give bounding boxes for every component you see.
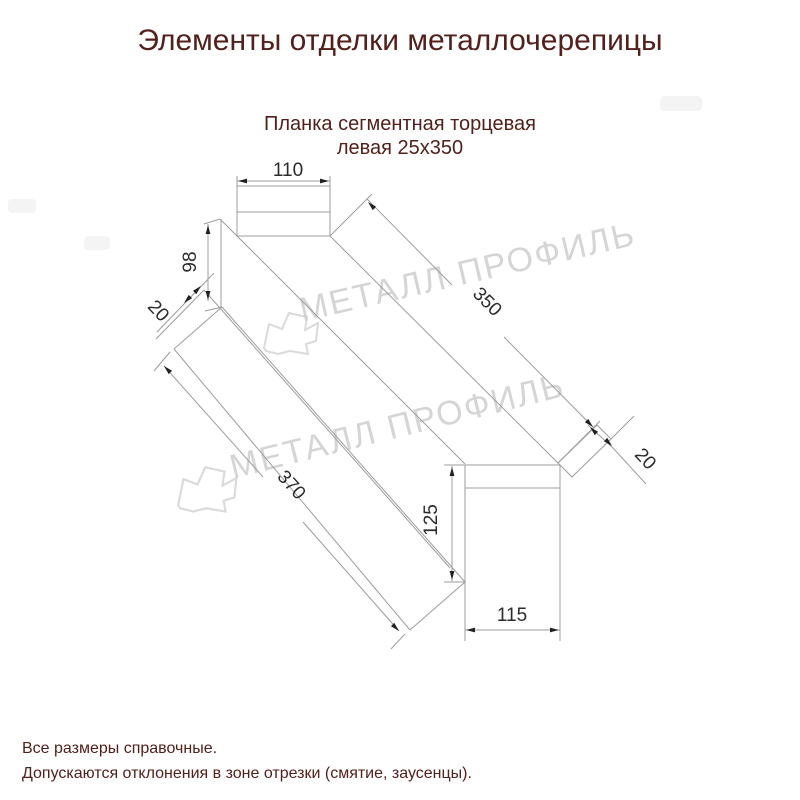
arrowhead: [164, 366, 172, 374]
watermark-text: МЕТАЛЛ ПРОФИЛЬ: [226, 366, 569, 486]
arrowhead: [184, 295, 192, 303]
technical-drawing: МЕТАЛЛ ПРОФИЛЬ МЕТАЛЛ ПРОФИЛЬ 110: [0, 0, 800, 800]
dim-20-right-label: 20: [630, 444, 660, 474]
dim-115-label: 115: [497, 605, 527, 626]
dim-98: 98: [180, 219, 222, 311]
watermark-fragment: [84, 236, 110, 250]
dim-125-label: 125: [421, 504, 442, 536]
dim-110-label: 110: [273, 160, 303, 181]
arrowhead: [238, 179, 247, 184]
arrowhead: [391, 623, 399, 631]
page-title: Элементы отделки металлочерепицы: [137, 24, 662, 57]
arrowhead: [450, 571, 455, 580]
product-drawing-page: МЕТАЛЛ ПРОФИЛЬ МЕТАЛЛ ПРОФИЛЬ 110: [0, 0, 800, 800]
face-right-end-edge: [410, 582, 465, 630]
product-subtitle-line1: Планка сегментная торцевая: [264, 113, 536, 135]
dim-20-left-label: 20: [143, 296, 173, 326]
metall-profil-logo-icon: [178, 467, 236, 511]
arrowhead: [550, 628, 559, 633]
arrowhead: [466, 628, 475, 633]
hem-tab-right: [558, 425, 611, 477]
arrowhead: [368, 202, 376, 210]
footer-note-line1: Все размеры справочные.: [22, 740, 217, 757]
watermark-fragment: [8, 199, 36, 213]
watermark-fragment: [660, 96, 702, 111]
arrowhead: [450, 467, 455, 476]
dim-98-label: 98: [180, 251, 201, 272]
arrowhead: [206, 291, 211, 300]
arrowhead: [206, 225, 211, 234]
flange-end-rect: [237, 186, 330, 236]
footer-note-line2: Допускаются отклонения в зоне отрезки (с…: [22, 765, 472, 782]
dim-115: 115: [465, 605, 560, 632]
product-subtitle-line2: левая 25х350: [337, 137, 463, 159]
dim-110: 110: [237, 160, 330, 186]
arrowhead: [320, 179, 329, 184]
face-rect-extensions: [465, 630, 560, 641]
dim-125: 125: [421, 465, 465, 582]
watermark-2: МЕТАЛЛ ПРОФИЛЬ: [178, 366, 569, 511]
watermark-text: МЕТАЛЛ ПРОФИЛЬ: [296, 215, 640, 329]
dim-extension: [611, 416, 634, 439]
